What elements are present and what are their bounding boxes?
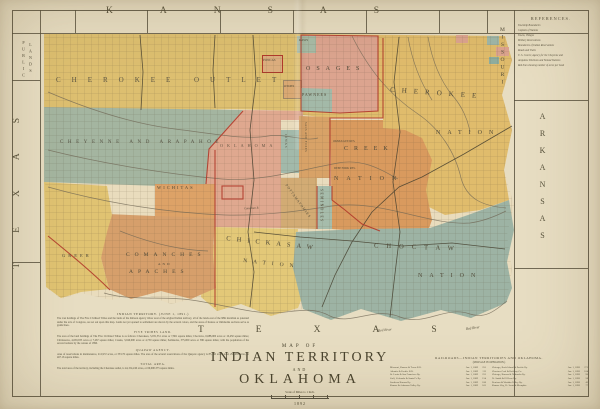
label-comanche-and: AND bbox=[158, 263, 172, 267]
railroad-miles: 165 bbox=[480, 384, 486, 388]
label-creek-nation: CREEK bbox=[344, 146, 394, 152]
railroad-row: Kansas & Arkansas Valley Ry.Jan. 1, 1889… bbox=[390, 384, 486, 388]
railroads-table-title: RAILROADS—INDIAN TERRITORIES AND OKLAHOM… bbox=[390, 356, 588, 360]
label-cheyenne-arapahoe: CHEYENNE AND ARAPAHOE bbox=[60, 140, 223, 145]
label-choctaw-nation-2: NATION bbox=[418, 273, 482, 279]
label-pawnee: PAWNEES bbox=[302, 93, 327, 97]
label-cherokee-outlet: CHEROKEE bbox=[56, 77, 181, 84]
map-sheet: KANSAS MISSOURI ARKANSAS TEXAS TEXAS PUB… bbox=[0, 0, 600, 409]
state-label-arkansas: ARKANSAS bbox=[538, 112, 546, 248]
notes-heading: INDIAN TERRITORY. (JUNE 1, 1891.) bbox=[57, 312, 249, 316]
label-otoe: OTOES bbox=[284, 85, 294, 88]
inner-right-line bbox=[514, 10, 515, 396]
railroad-name: Kansas & Arkansas Valley Ry. bbox=[390, 384, 464, 388]
railroads-column-right: Chicago, Rock Island & Pacific Ry.Jan. 1… bbox=[492, 366, 588, 388]
label-greer: GREER bbox=[62, 254, 92, 259]
label-apache: APACHES bbox=[129, 270, 189, 276]
label-creek-nation-2: NATION bbox=[334, 176, 404, 182]
band-tick bbox=[514, 100, 588, 101]
notes-paragraph: The vast holdings of The Five Civilized … bbox=[57, 317, 249, 328]
references-title: REFERENCES. bbox=[518, 16, 584, 21]
notes-heading-title: INDIAN TERRITORY. bbox=[117, 312, 158, 316]
label-okmulgee: OKMULGEE RES. bbox=[333, 141, 355, 144]
label-iowa: IOWAS bbox=[284, 134, 287, 149]
title-scale-note: Scale of Miles to 1 Inch. bbox=[210, 390, 390, 394]
label-wichita: WICHITAS bbox=[157, 186, 195, 191]
scale-bar bbox=[271, 395, 329, 399]
railroad-date: Jan. 1, 1890 bbox=[568, 384, 580, 388]
notes-heading-date: (JUNE 1, 1891.) bbox=[159, 312, 189, 316]
label-sac-and-fox: SACS AND FOXES bbox=[303, 122, 306, 152]
railroad-date: Jan. 1, 1889 bbox=[466, 384, 478, 388]
railroads-column-left: Missouri, Kansas & Texas R.R.Jan. 1, 188… bbox=[390, 366, 486, 388]
railroads-table: RAILROADS—INDIAN TERRITORIES AND OKLAHOM… bbox=[390, 356, 588, 388]
title-map-of: MAP OF bbox=[210, 344, 390, 349]
railroad-miles: 77 bbox=[582, 384, 588, 388]
railroad-name: Kansas City, Ft. Scott & Memphis bbox=[492, 384, 566, 388]
references-line: Red lines showing number of acres per he… bbox=[518, 63, 584, 68]
references-legend: REFERENCES. Township Boundaries Capitals… bbox=[518, 16, 584, 68]
band-tick bbox=[487, 10, 488, 33]
label-seminole: SEMINOLES bbox=[319, 189, 323, 223]
label-oklahoma-territory: OKLAHOMA bbox=[220, 144, 276, 148]
state-label-missouri: MISSOURI bbox=[499, 27, 505, 87]
title-indian-territory: INDIAN TERRITORY bbox=[210, 350, 390, 366]
band-tick bbox=[439, 10, 440, 33]
railroads-table-subtitle: (MILEAGE IN OPERATION.) bbox=[390, 361, 588, 364]
band-tick bbox=[514, 268, 588, 269]
label-public-lands-2: LANDS bbox=[28, 42, 32, 75]
label-ponca: PONCAS bbox=[263, 59, 276, 62]
label-kaw: KAWS bbox=[299, 39, 308, 42]
title-oklahoma: OKLAHOMA bbox=[210, 372, 390, 388]
label-cherokee-nation-2: NATION bbox=[436, 130, 500, 136]
state-label-kansas: KANSAS bbox=[106, 7, 426, 17]
railroad-row: Kansas City, Ft. Scott & MemphisJan. 1, … bbox=[492, 384, 588, 388]
map-title-block: MAP OF INDIAN TERRITORY AND OKLAHOMA Sca… bbox=[210, 344, 390, 406]
inner-left-line bbox=[40, 10, 41, 396]
band-tick bbox=[75, 10, 76, 33]
label-cherokee-outlet-2: OUTLET bbox=[194, 77, 287, 84]
label-public-lands-1: PUBLIC bbox=[21, 40, 25, 79]
label-deep-fork: DEEP FORK RES. bbox=[334, 168, 356, 171]
label-osage: OSAGES bbox=[306, 66, 365, 72]
state-label-texas-west: TEXAS bbox=[13, 88, 23, 269]
title-year: 1892 bbox=[210, 401, 390, 406]
notes-subhead-five-tribes: FIVE TRIBES LAND. bbox=[57, 330, 249, 334]
label-comanche: COMANCHES bbox=[126, 253, 206, 259]
band-tick bbox=[12, 80, 40, 81]
